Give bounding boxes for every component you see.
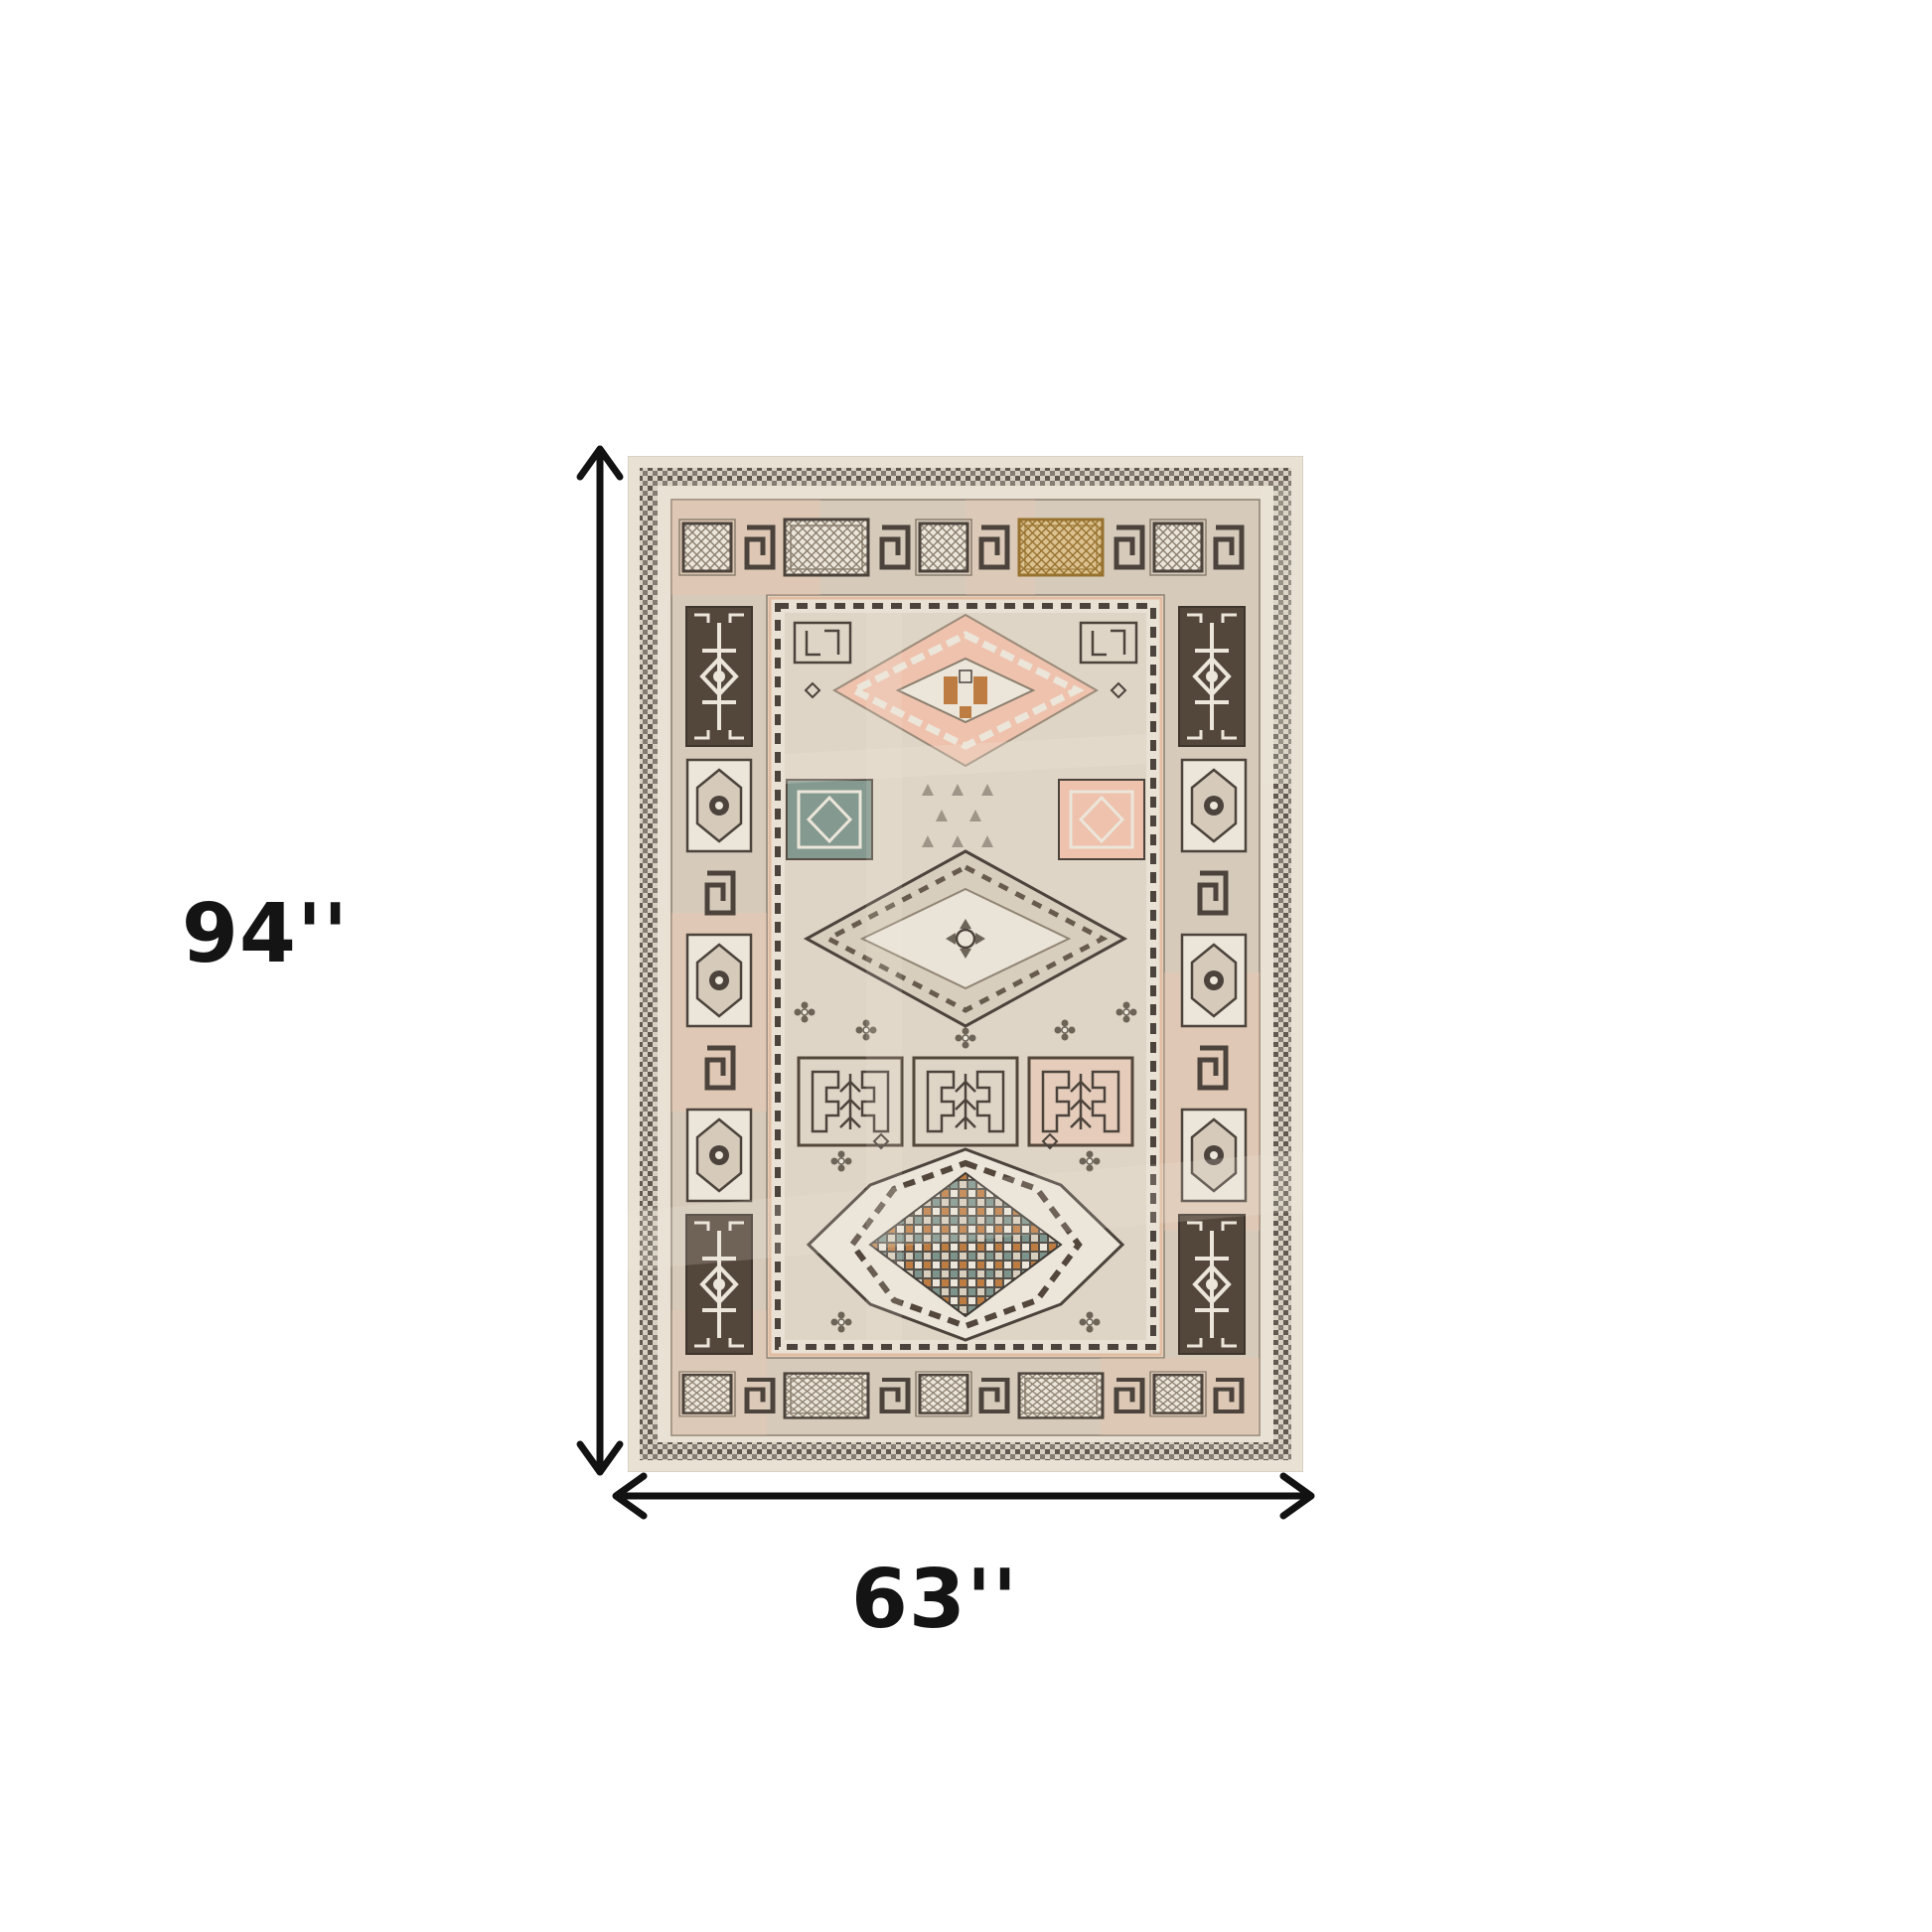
height-dimension-arrow-icon <box>570 441 630 1480</box>
product-dimension-diagram: 94'' 63'' <box>0 0 1932 1932</box>
rug-image <box>628 456 1303 1472</box>
height-label: 94'' <box>166 894 365 975</box>
width-dimension-arrow-icon <box>608 1466 1319 1526</box>
rug-illustration <box>628 456 1303 1472</box>
width-label: 63'' <box>835 1560 1034 1641</box>
